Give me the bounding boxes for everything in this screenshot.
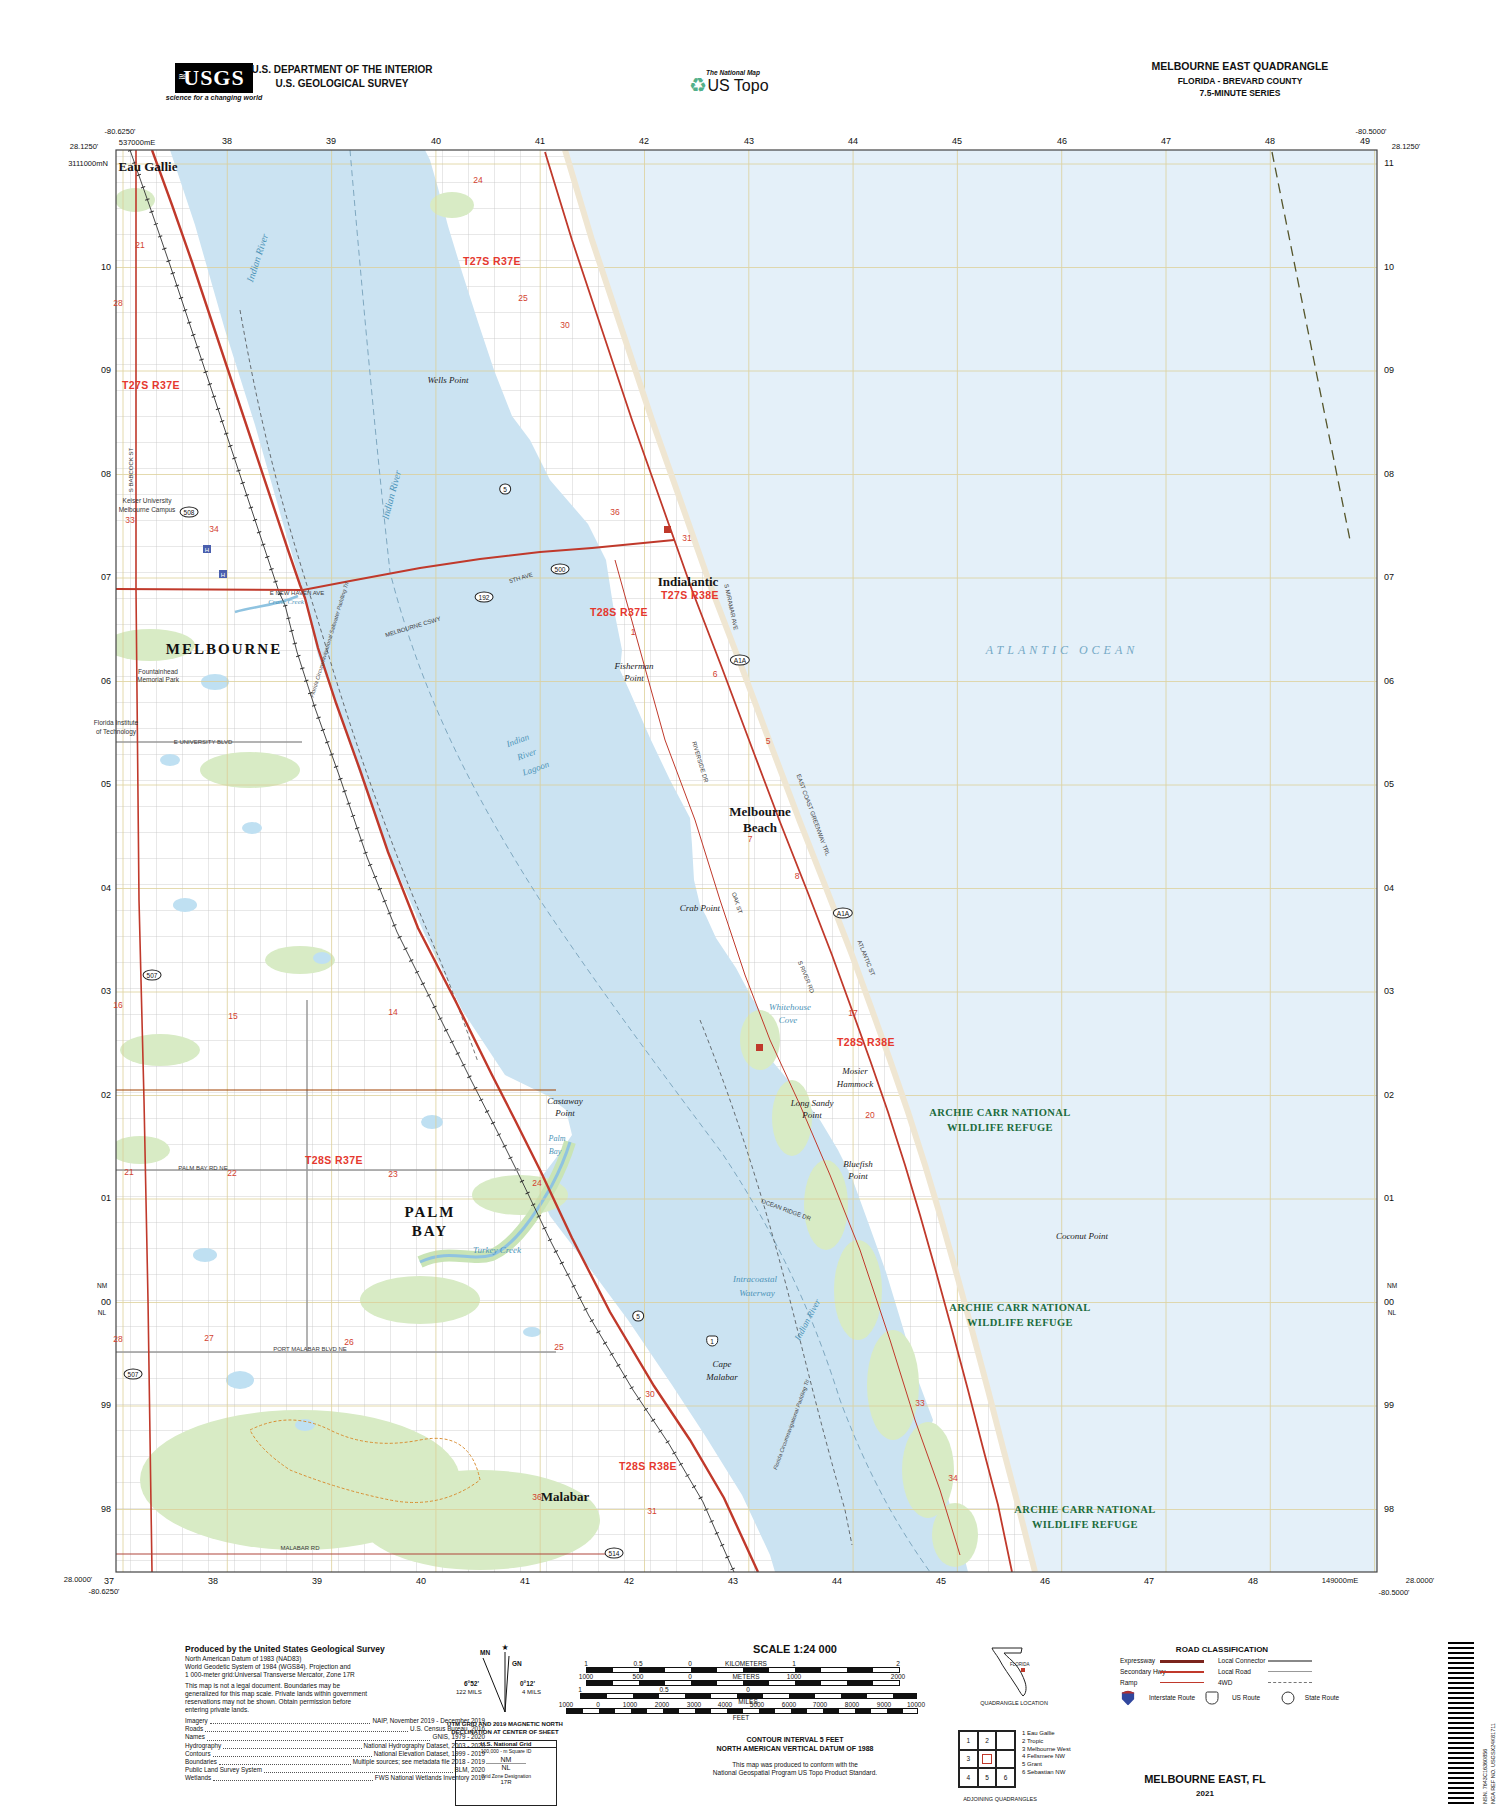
institution-label: of Technology [96,729,136,736]
usng-square-edge: NL [1388,1310,1396,1317]
township-range-label: T28S R38E [619,1461,677,1472]
usng-square-edge: NM [1387,1283,1397,1290]
township-range-label: T27S R38E [661,590,719,601]
grid-easting-bottom: 44 [832,1577,842,1586]
section-number: 7 [748,835,753,844]
scale-bar-m [586,1680,900,1686]
section-number: 22 [227,1169,236,1178]
datum-block: North American Datum of 1983 (NAD83)Worl… [185,1655,355,1679]
section-number: 25 [554,1343,563,1352]
credit-row: HydrographyNational Hydrography Dataset,… [185,1742,485,1750]
street-label: 5TH AVE [508,571,533,584]
point-feature-label: Hammock [837,1080,874,1089]
usng-square-bottom: NL [486,1763,526,1771]
grid-easting-bottom: 48 [1248,1577,1258,1586]
section-number: 34 [209,525,218,534]
corner-coordinate: -80.6250' [88,1588,119,1596]
grid-easting-bottom: 45 [936,1577,946,1586]
water-label: Indian [505,733,530,750]
route-shield: 500 [551,564,570,575]
scale-label: 7000 [813,1701,827,1708]
grid-northing-left: 03 [101,987,111,996]
section-number: 33 [915,1399,924,1408]
scale-label: 2000 [655,1701,669,1708]
section-number: 28 [113,1335,122,1344]
barcode [1448,1642,1474,1804]
scale-label: 1000 [579,1673,593,1680]
road-class-sample [1268,1660,1312,1662]
scale-label: 500 [633,1673,644,1680]
street-label: EAST COAST GREENWAY TRL [795,773,831,857]
section-number: 30 [645,1390,654,1399]
scale-label: 3000 [687,1701,701,1708]
usng-title: U.S. National Grid [456,1741,556,1748]
grid-easting-top: 42 [639,137,649,146]
barcode-nga: NGA REF NO. USGSX24K81711 [1490,1723,1496,1804]
water-label: Indian River [380,469,403,520]
grid-easting-top: 48 [1265,137,1275,146]
scale-label: 6000 [782,1701,796,1708]
route-shield: 5 [499,484,511,495]
section-number: 14 [388,1008,397,1017]
road-class-sample [1160,1682,1204,1683]
credit-row: ContoursNational Elevation Dataset, 1999… [185,1750,485,1758]
street-label: S RIVER RD [797,960,816,994]
grid-easting-bottom: 41 [520,1577,530,1586]
scale-label: 2 [896,1660,900,1667]
scale-label: METERS [732,1673,759,1680]
section-number: 33 [125,516,134,525]
usng-box: U.S. National Grid 100,000 - m Square ID… [455,1740,557,1806]
grid-easting-top: 46 [1057,137,1067,146]
grid-northing-right: 10 [1384,263,1394,272]
water-label: Bay [549,1148,561,1156]
water-label: Whitehouse [769,1003,811,1012]
section-number: 20 [865,1111,874,1120]
point-feature-label: Malabar [706,1373,738,1382]
section-number: 17 [848,1009,857,1018]
section-number: 21 [124,1168,133,1177]
road-class-sample [1268,1671,1312,1672]
grid-northing-left: 00 [101,1298,111,1307]
grid-easting-top: 39 [326,137,336,146]
corner-coordinate: 3111000mN [68,160,108,168]
grid-northing-right: 05 [1384,780,1394,789]
adjoining-grid: 123456 [958,1730,1016,1788]
institution-label: Fountainhead [138,669,178,676]
scale-label: 9000 [877,1701,891,1708]
scale-label: 0 [688,1660,692,1667]
water-label: Waterway [739,1289,775,1298]
street-label: PORT MALABAR BLVD NE [273,1346,347,1352]
road-class-label: Expressway [1120,1657,1155,1665]
point-feature-label: Point [624,674,644,683]
point-feature-label: Point [802,1111,822,1120]
grid-easting-top: 49 [1360,137,1370,146]
section-number: 30 [560,321,569,330]
street-label: S MIRAMAR AVE [723,583,739,630]
map-label-layer: MELBOURNEPALMBAYEau GallieIndialanticMel… [0,0,1500,1813]
grid-northing-right: 06 [1384,677,1394,686]
route-shield: 514 [605,1548,624,1559]
corner-coordinate: -80.5000' [1378,1589,1409,1597]
grid-easting-top: 44 [848,137,858,146]
scale-label: 1 [584,1660,588,1667]
grid-easting-top: 38 [222,137,232,146]
road-class-label: Local Connector [1218,1657,1265,1665]
credit-row: Public Land Survey SystemBLM, 2020 [185,1766,485,1774]
grid-northing-right: 08 [1384,470,1394,479]
scale-label: 0.5 [659,1686,668,1693]
grid-easting-bottom: 37 [104,1577,114,1586]
credit-row: BoundariesMultiple sources; see metadata… [185,1758,485,1766]
grid-northing-right: 07 [1384,573,1394,582]
grid-easting-bottom: 42 [624,1577,634,1586]
point-feature-label: Fisherman [615,662,654,671]
place-name: Eau Gallie [119,160,178,174]
road-class-label: Secondary Hwy [1120,1668,1166,1676]
grid-easting-top: 47 [1161,137,1171,146]
street-label: RIVERSIDE DR [691,741,710,784]
section-number: 26 [344,1338,353,1347]
water-label: River [516,747,538,763]
grid-easting-bottom: 43 [728,1577,738,1586]
road-class-label: Local Road [1218,1668,1251,1676]
grid-northing-left: 10 [101,263,111,272]
corner-coordinate: 28.0000' [64,1576,93,1584]
scale-label: 1 [792,1660,796,1667]
road-class-sample [1160,1671,1204,1673]
route-shield: 507 [124,1369,143,1380]
scale-label: 1 [578,1686,582,1693]
section-number: 6 [713,670,718,679]
street-label: S BABCOCK ST [128,448,134,492]
route-shield: 507 [143,970,162,981]
street-label: OCEAN RIDGE DR [760,1198,811,1222]
produced-title: Produced by the United States Geological… [185,1644,385,1654]
street-label: E UNIVERSITY BLVD [174,739,232,745]
scale-label: 10000 [907,1701,925,1708]
usng-square-top: NM [456,1756,556,1763]
corner-coordinate: 537000mE [119,139,155,147]
section-number: 8 [795,872,800,881]
grid-northing-right: 00 [1384,1298,1394,1307]
water-label: Indian River [793,1298,823,1342]
point-feature-label: Long Sandy [791,1099,834,1108]
corner-coordinate: 28.1250' [1392,143,1421,151]
refuge-label: ARCHIE CARR NATIONAL [929,1107,1070,1118]
legal-block: This map is not a legal document. Bounda… [185,1682,367,1715]
credit-row: ImageryNAIP, November 2019 - December 20… [185,1717,485,1725]
section-number: 16 [113,1001,122,1010]
svg-text:122 MILS: 122 MILS [456,1689,482,1695]
water-label: Lagoon [521,760,550,778]
point-feature-label: Point [555,1109,575,1118]
credit-row: RoadsU.S. Census Bureau, 2016 [185,1725,485,1733]
scale-label: 0 [596,1701,600,1708]
township-range-label: T28S R37E [305,1155,363,1166]
svg-text:0°12': 0°12' [520,1680,535,1687]
grid-easting-top: 41 [535,137,545,146]
township-range-label: T28S R38E [837,1037,895,1048]
institution-label: Memorial Park [137,677,179,684]
section-number: 28 [113,299,122,308]
svg-text:★: ★ [501,1643,508,1652]
usng-square-edge: NM [97,1283,107,1290]
scale-label: 5000 [750,1701,764,1708]
grid-easting-top: 45 [952,137,962,146]
refuge-label: WILDLIFE REFUGE [947,1122,1053,1133]
svg-text:MN: MN [480,1649,490,1656]
grid-northing-right: 01 [1384,1194,1394,1203]
us-topo-map-sheet: ≋ USGS science for a changing world U.S.… [0,0,1500,1813]
refuge-label: WILDLIFE REFUGE [1032,1519,1138,1530]
water-label: Indian River [245,232,271,283]
grid-northing-left: 04 [101,884,111,893]
usng-zone: 17R [456,1779,556,1785]
section-number: 1 [631,628,636,637]
street-label: ATLANTIC ST [856,939,876,977]
route-shield: A1A [833,908,853,919]
point-feature-label: Cape [713,1360,732,1369]
water-label: Cove [779,1016,798,1025]
svg-text:4 MILS: 4 MILS [522,1689,541,1695]
point-feature-label: Mosier [842,1067,868,1076]
route-shield: 508 [180,507,199,518]
declination-diagram: ★ MN GN 6°52' 122 MILS 0°12' 4 MILS [450,1642,560,1717]
section-number: 21 [135,241,144,250]
section-number: 24 [473,176,482,185]
institution-label: Melbourne Campus [119,507,176,514]
section-number: 31 [647,1507,656,1516]
place-name-large: BAY [412,1224,448,1240]
scale-label: FEET [733,1714,750,1721]
section-number: 27 [204,1334,213,1343]
grid-northing-right: 99 [1384,1401,1394,1410]
adjoining-list: 1 Eau Gallie2 Tropic3 Melbourne West4 Fe… [1022,1730,1071,1777]
trail-label: Florida Circumnavigational Saltwater Pad… [310,582,351,698]
street-label: OAK ST [731,892,744,915]
grid-northing-right: 98 [1384,1505,1394,1514]
usng-sub: 100,000 - m Square ID [456,1748,556,1754]
grid-easting-bottom: 47 [1144,1577,1154,1586]
grid-northing-right: 11 [1384,159,1393,168]
scale-label: KILOMETERS [725,1660,767,1667]
place-name-large: MELBOURNE [166,642,282,658]
scale-label: 1000 [559,1701,573,1708]
corner-coordinate: 28.0000' [1406,1577,1435,1585]
point-feature-label: Wells Point [428,376,469,385]
grid-easting-top: 43 [744,137,754,146]
township-range-label: T27S R37E [122,380,180,391]
scale-label: 0 [746,1686,750,1693]
street-label: MELBOURNE CSWY [384,616,441,639]
scale-label: 1000 [623,1701,637,1708]
place-name: Beach [743,821,777,835]
grid-northing-left: 01 [101,1194,111,1203]
grid-northing-right: 03 [1384,987,1394,996]
grid-northing-left: 06 [101,677,111,686]
svg-text:GN: GN [512,1660,522,1667]
grid-easting-top: 40 [431,137,441,146]
grid-northing-left: 05 [101,780,111,789]
section-number: 36 [532,1493,541,1502]
route-shield: 5 [632,1311,644,1322]
point-feature-label: Castaway [547,1097,583,1106]
scale-label: 4000 [718,1701,732,1708]
scale-label: 0.5 [633,1660,642,1667]
street-label: E NEW HAVEN AVE [270,590,324,596]
point-feature-label: Point [848,1172,868,1181]
florida-outline: FLORIDA [988,1644,1040,1700]
trail-label: Florida Circumnavigational Paddling Trl [773,1379,811,1471]
barcode-nsn: NSN. 7643C16360856 [1482,1749,1488,1804]
scale-label: 0 [688,1673,692,1680]
grid-easting-bottom: 40 [416,1577,426,1586]
corner-coordinate: -80.6250' [104,128,135,136]
section-number: 31 [682,534,691,543]
svg-text:FLORIDA: FLORIDA [1010,1662,1030,1667]
grid-northing-left: 98 [101,1505,111,1514]
road-class-label: Ramp [1120,1679,1137,1687]
section-number: 24 [532,1179,541,1188]
institution-label: Florida Institute [94,720,138,727]
institution-label: Keiser University [123,498,172,505]
grid-northing-left: 08 [101,470,111,479]
point-feature-label: Bluefish [843,1160,873,1169]
water-label: Crane Creek [268,599,304,606]
water-label: Turkey Creek [473,1246,521,1255]
road-class-sample [1160,1660,1204,1663]
street-label: MALABAR RD [280,1545,319,1551]
corner-coordinate: 149000mE [1322,1577,1358,1585]
scale-label: 2000 [891,1673,905,1680]
grid-northing-left: 02 [101,1091,111,1100]
section-number: 34 [948,1474,957,1483]
scale-label: 1000 [787,1673,801,1680]
section-number: 5 [766,737,771,746]
township-range-label: T28S R37E [590,607,648,618]
grid-northing-left: 99 [101,1401,111,1410]
grid-easting-bottom: 38 [208,1577,218,1586]
road-class-label: 4WD [1218,1679,1232,1687]
grid-northing-right: 02 [1384,1091,1394,1100]
section-number: 36 [610,508,619,517]
place-name: Melbourne [729,805,790,819]
point-feature-label: Coconut Point [1056,1232,1108,1241]
water-label: Intracoastal [733,1275,777,1284]
place-name: Malabar [541,1490,589,1504]
section-number: 25 [518,294,527,303]
route-shield: A1A [730,655,750,666]
grid-easting-bottom: 46 [1040,1577,1050,1586]
refuge-label: ARCHIE CARR NATIONAL [1014,1504,1155,1515]
ocean-label: ATLANTIC OCEAN [986,644,1139,657]
township-range-label: T27S R37E [463,256,521,267]
credit-row: NamesGNIS, 1979 - 2020 [185,1733,485,1741]
section-number: 23 [388,1170,397,1179]
credit-row: WetlandsFWS National Wetlands Inventory … [185,1774,485,1782]
scale-label: 8000 [845,1701,859,1708]
grid-northing-left: 07 [101,573,111,582]
corner-coordinate: 28.1250' [70,143,99,151]
grid-northing-right: 04 [1384,884,1394,893]
place-name-large: PALM [404,1205,455,1221]
grid-easting-bottom: 39 [312,1577,322,1586]
usng-square-edge: NL [98,1310,106,1317]
grid-northing-right: 09 [1384,366,1394,375]
road-class-sample [1268,1682,1312,1683]
section-number: 15 [228,1012,237,1021]
water-label: Palm [549,1135,566,1143]
refuge-label: WILDLIFE REFUGE [967,1317,1073,1328]
street-label: PALM BAY RD NE [178,1165,227,1171]
grid-northing-left: 09 [101,366,111,375]
place-name: Indialantic [658,575,719,589]
route-shield: 192 [475,592,494,603]
corner-coordinate: -80.5000' [1355,128,1386,136]
route-shield: 1 [706,1336,718,1347]
refuge-label: ARCHIE CARR NATIONAL [949,1302,1090,1313]
svg-text:6°52': 6°52' [464,1680,479,1687]
point-feature-label: Crab Point [680,904,720,913]
credits-block: ImageryNAIP, November 2019 - December 20… [185,1717,485,1782]
